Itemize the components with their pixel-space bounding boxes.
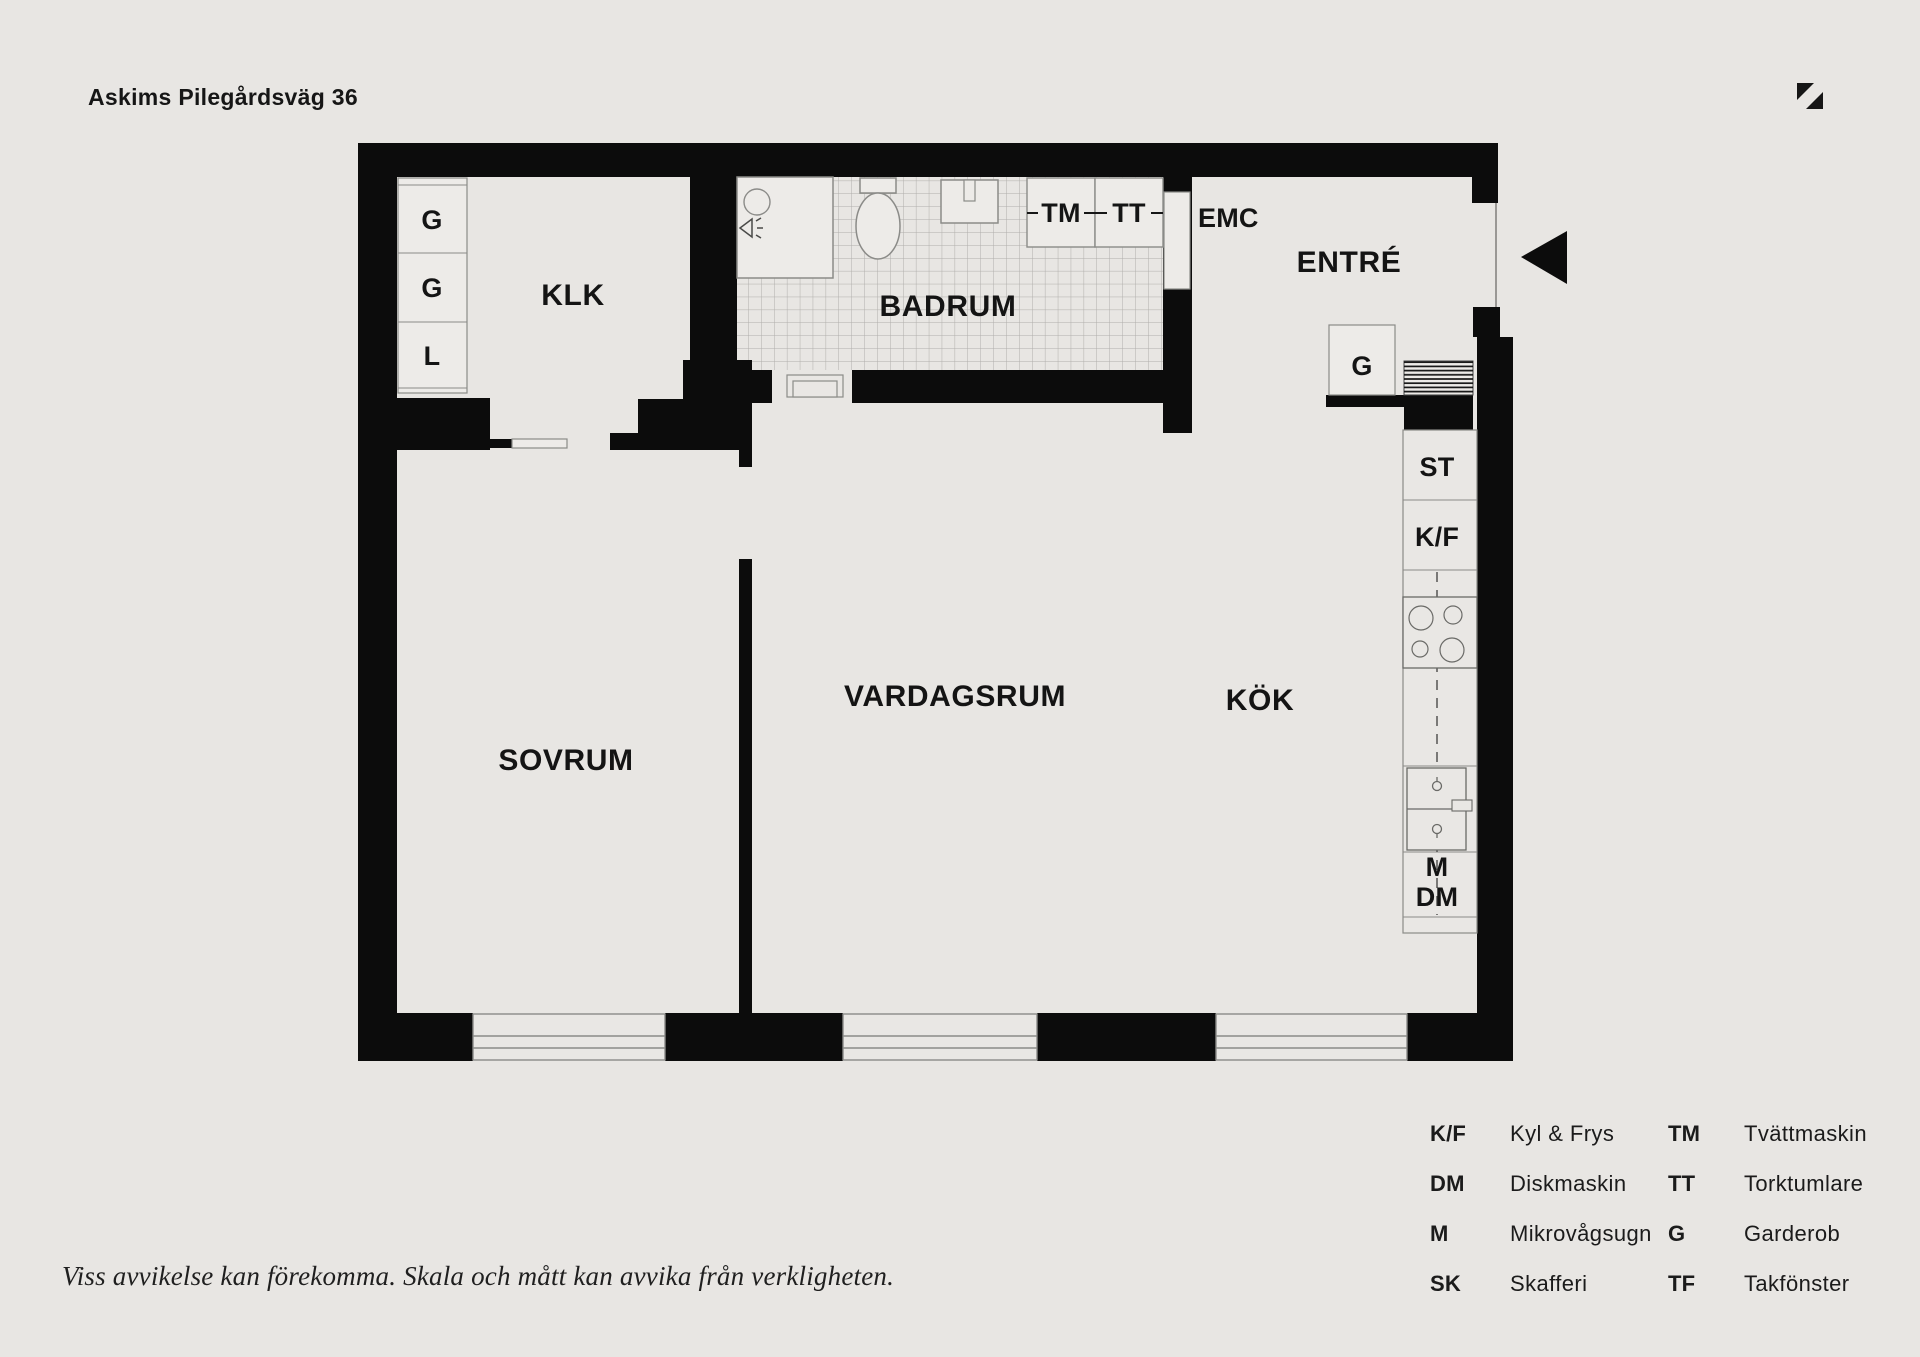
wall-sovrum-partition — [739, 559, 752, 1013]
legend-abbr: DM — [1430, 1171, 1510, 1197]
legend-label: Takfönster — [1744, 1271, 1867, 1297]
wall-door-jamb-top — [1472, 177, 1498, 203]
entre-fixtures: G — [1329, 325, 1473, 395]
legend-abbr: TM — [1668, 1121, 1744, 1147]
windows — [473, 1014, 1407, 1060]
room-label-vardagsrum: VARDAGSRUM — [844, 680, 1066, 713]
wall-klk-bottom — [397, 398, 490, 450]
room-label-klk: KLK — [541, 279, 604, 312]
sliding-door-track — [478, 439, 512, 448]
legend: K/F Kyl & Frys TM Tvättmaskin DM Diskmas… — [1430, 1121, 1867, 1321]
wall-step-2 — [638, 399, 683, 450]
wardrobe-2-label: G — [421, 273, 442, 303]
wardrobe-1-label: G — [421, 205, 442, 235]
wall-partition-stub — [739, 450, 752, 467]
room-labels: KLK BADRUM ENTRÉ EMC SOVRUM VARDAGSRUM K… — [498, 203, 1401, 777]
legend-abbr: TF — [1668, 1271, 1744, 1297]
entry-arrow-icon — [1521, 231, 1567, 284]
shower — [737, 177, 833, 278]
wall-bottom-3 — [1037, 1013, 1216, 1061]
wall-badrum-bottom — [852, 370, 1163, 403]
linen-closet-label: L — [424, 341, 441, 371]
emc-cabinet — [1164, 192, 1190, 289]
stove — [1403, 597, 1477, 668]
legend-abbr: M — [1430, 1221, 1510, 1247]
window-sovrum — [473, 1014, 665, 1060]
legend-label: Torktumlare — [1744, 1171, 1867, 1197]
pantry-cabinet-label: ST — [1420, 452, 1455, 482]
room-label-badrum: BADRUM — [880, 290, 1017, 323]
bathroom-sink — [941, 180, 998, 223]
wall-step-3 — [683, 360, 752, 450]
wall-badrum-doorjamb-left — [752, 370, 772, 403]
kitchen-counter: ST K/F M DM — [1403, 430, 1477, 933]
window-vardagsrum — [843, 1014, 1037, 1060]
microwave-label: M — [1426, 852, 1449, 882]
legend-abbr: TT — [1668, 1171, 1744, 1197]
wall-bottom-1 — [397, 1013, 473, 1061]
entry-opening-edge — [1495, 203, 1497, 307]
room-label-entre: ENTRÉ — [1297, 245, 1402, 279]
room-label-kok: KÖK — [1226, 684, 1294, 717]
disclaimer-text: Viss avvikelse kan förekomma. Skala och … — [62, 1261, 894, 1292]
badrum-threshold — [787, 375, 843, 397]
sliding-door-leaf — [512, 439, 567, 448]
fridge-freezer-label: K/F — [1415, 522, 1459, 552]
wall-entre-bottom-thick — [1404, 395, 1473, 430]
kitchen-sink — [1407, 768, 1472, 850]
wall-door-jamb-bottom — [1473, 307, 1500, 337]
klk-wardrobes: G G L — [398, 178, 467, 393]
window-kok — [1216, 1014, 1407, 1060]
legend-label: Diskmaskin — [1510, 1171, 1668, 1197]
room-label-sovrum: SOVRUM — [498, 744, 633, 777]
wall-entre-bottom-thin — [1326, 395, 1404, 407]
legend-label: Kyl & Frys — [1510, 1121, 1668, 1147]
entre-wardrobe-label: G — [1351, 351, 1372, 381]
dishwasher-label: DM — [1416, 882, 1458, 912]
legend-label: Mikrovågsugn — [1510, 1221, 1668, 1247]
washing-machine-label: TM — [1041, 198, 1080, 228]
legend-abbr: SK — [1430, 1271, 1510, 1297]
entre-hatch — [1404, 361, 1473, 395]
faucet — [1452, 800, 1472, 811]
wall-bottom-4 — [1407, 1013, 1513, 1061]
legend-label: Tvättmaskin — [1744, 1121, 1867, 1147]
wall-top — [358, 143, 1498, 177]
wall-step-1 — [610, 433, 638, 450]
wall-left — [358, 143, 397, 1061]
laundry-units: TM TT — [1027, 178, 1163, 247]
dryer-label: TT — [1112, 198, 1146, 228]
room-label-emc: EMC — [1198, 203, 1259, 233]
legend-abbr: G — [1668, 1221, 1744, 1247]
wall-right — [1477, 337, 1513, 1015]
legend-label: Skafferi — [1510, 1271, 1668, 1297]
legend-abbr: K/F — [1430, 1121, 1510, 1147]
legend-label: Garderob — [1744, 1221, 1867, 1247]
wall-bottom-2 — [665, 1013, 843, 1061]
toilet — [856, 178, 900, 259]
